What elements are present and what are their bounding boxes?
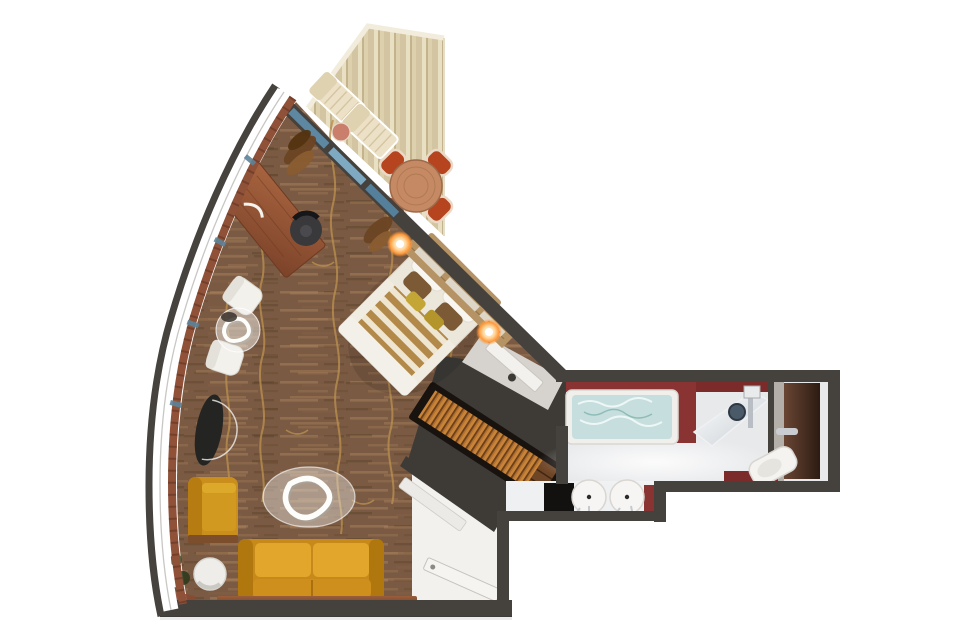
bedside-lamp (476, 319, 502, 345)
bathroom-wall-left (556, 426, 568, 484)
desk-chair (290, 213, 322, 246)
jetted-tub (566, 390, 678, 444)
sofa-seat-cushion (255, 543, 311, 577)
round-glass-table (216, 308, 260, 352)
shower-control-panel (744, 386, 760, 398)
floor-plan-svg (0, 0, 957, 638)
armchair-wood-trim (188, 535, 238, 543)
sofa-arm (369, 539, 384, 601)
vanity-wall-bottom (498, 511, 666, 521)
black-cabinet (544, 483, 574, 511)
floor-plan-image (0, 0, 957, 638)
armchair (188, 477, 238, 543)
door-handle (776, 428, 798, 435)
shower-head (729, 404, 745, 420)
balcony-side-table (332, 123, 350, 141)
wall-bottom (160, 600, 512, 617)
bowl (221, 312, 237, 322)
bathroom-wall-bottom (654, 481, 840, 492)
bathroom-wall-right (828, 370, 840, 492)
side-table (194, 558, 226, 590)
bath-red-wall (676, 381, 696, 443)
bedside-lamp (387, 231, 413, 257)
sofa-seat-cushion (313, 543, 369, 577)
oval-glass-coffee-table (263, 467, 355, 527)
bathroom-wall-top (556, 370, 840, 382)
sofa-arm (238, 539, 253, 601)
